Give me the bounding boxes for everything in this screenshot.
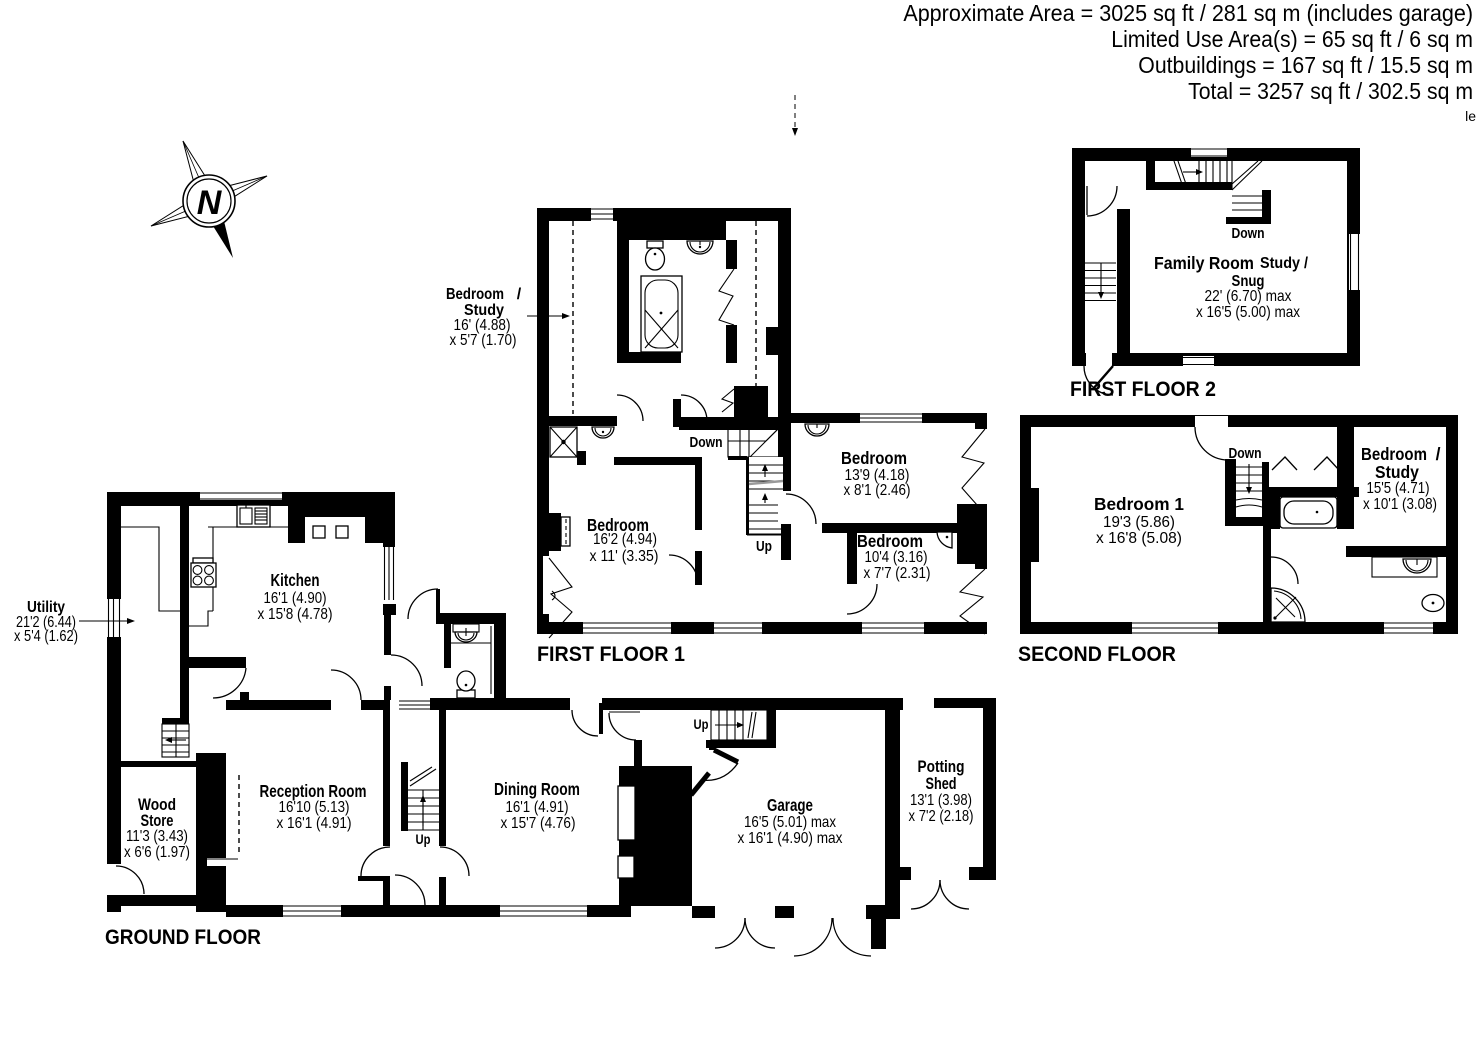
svg-text:Wood: Wood xyxy=(138,796,176,814)
svg-text:x 7'7 (2.31): x 7'7 (2.31) xyxy=(864,565,931,582)
svg-text:x 15'7 (4.76): x 15'7 (4.76) xyxy=(501,815,576,832)
svg-text:Bedroom: Bedroom xyxy=(841,449,907,468)
svg-text:GROUND FLOOR: GROUND FLOOR xyxy=(105,926,261,949)
svg-text:x 10'1 (3.08): x 10'1 (3.08) xyxy=(1363,496,1437,513)
svg-text:x 16'8 (5.08): x 16'8 (5.08) xyxy=(1096,530,1182,547)
svg-text:Potting: Potting xyxy=(918,758,965,777)
svg-text:/: / xyxy=(1436,444,1441,464)
svg-text:Down: Down xyxy=(1232,225,1265,241)
svg-text:16'5 (5.01) max: 16'5 (5.01) max xyxy=(744,814,837,831)
svg-text:13'1 (3.98): 13'1 (3.98) xyxy=(910,792,972,809)
svg-text:16'1 (4.90): 16'1 (4.90) xyxy=(264,590,327,607)
svg-text:Family Room: Family Room xyxy=(1154,253,1254,273)
svg-text:/: / xyxy=(517,286,522,303)
svg-text:SECOND FLOOR: SECOND FLOOR xyxy=(1018,642,1176,666)
svg-text:Up: Up xyxy=(416,832,431,847)
svg-text:Limited Use Area(s) = 65 sq ft: Limited Use Area(s) = 65 sq ft / 6 sq m xyxy=(1111,26,1473,52)
svg-text:x 5'7 (1.70): x 5'7 (1.70) xyxy=(450,332,517,349)
svg-text:Down: Down xyxy=(1229,445,1262,461)
svg-text:x 16'1 (4.90) max: x 16'1 (4.90) max xyxy=(738,830,843,847)
svg-text:Garage: Garage xyxy=(767,796,813,815)
svg-text:x 16'1 (4.91): x 16'1 (4.91) xyxy=(277,815,352,832)
svg-text:Dining Room: Dining Room xyxy=(494,781,580,800)
svg-text:Approximate Area = 3025 sq ft: Approximate Area = 3025 sq ft / 281 sq m… xyxy=(903,0,1473,26)
svg-text:x 5'4 (1.62): x 5'4 (1.62) xyxy=(14,628,78,645)
svg-text:Total = 3257 sq ft / 302.5 sq: Total = 3257 sq ft / 302.5 sq m xyxy=(1188,78,1473,104)
svg-text:x 16'5 (5.00) max: x 16'5 (5.00) max xyxy=(1196,304,1301,321)
svg-text:le: le xyxy=(1465,108,1476,124)
svg-text:16'10 (5.13): 16'10 (5.13) xyxy=(279,799,350,816)
svg-text:FIRST FLOOR 1: FIRST FLOOR 1 xyxy=(537,642,685,666)
svg-text:22' (6.70) max: 22' (6.70) max xyxy=(1205,288,1293,305)
svg-text:10'4 (3.16): 10'4 (3.16) xyxy=(865,549,928,566)
svg-text:x 11' (3.35): x 11' (3.35) xyxy=(590,547,659,565)
svg-text:Study /: Study / xyxy=(1260,255,1308,273)
svg-text:16'2 (4.94): 16'2 (4.94) xyxy=(593,531,657,548)
svg-text:x 8'1 (2.46): x 8'1 (2.46) xyxy=(844,482,911,499)
svg-text:Outbuildings = 167 sq ft / 15.: Outbuildings = 167 sq ft / 15.5 sq m xyxy=(1138,52,1473,78)
svg-text:FIRST FLOOR 2: FIRST FLOOR 2 xyxy=(1070,377,1216,401)
svg-text:x 15'8 (4.78): x 15'8 (4.78) xyxy=(258,606,333,623)
svg-text:16'1 (4.91): 16'1 (4.91) xyxy=(506,799,569,816)
svg-text:x 6'6 (1.97): x 6'6 (1.97) xyxy=(124,844,190,861)
svg-text:11'3 (3.43): 11'3 (3.43) xyxy=(126,828,188,845)
svg-text:Bedroom 1: Bedroom 1 xyxy=(1094,494,1184,514)
svg-text:15'5 (4.71): 15'5 (4.71) xyxy=(1367,480,1430,497)
svg-text:Kitchen: Kitchen xyxy=(271,571,320,590)
svg-text:N: N xyxy=(197,184,223,222)
svg-text:Up: Up xyxy=(694,717,709,732)
svg-text:Shed: Shed xyxy=(926,776,957,794)
svg-text:Down: Down xyxy=(690,434,723,450)
svg-text:x 7'2 (2.18): x 7'2 (2.18) xyxy=(909,808,974,825)
svg-text:19'3 (5.86): 19'3 (5.86) xyxy=(1103,514,1175,531)
svg-text:Up: Up xyxy=(756,538,772,555)
